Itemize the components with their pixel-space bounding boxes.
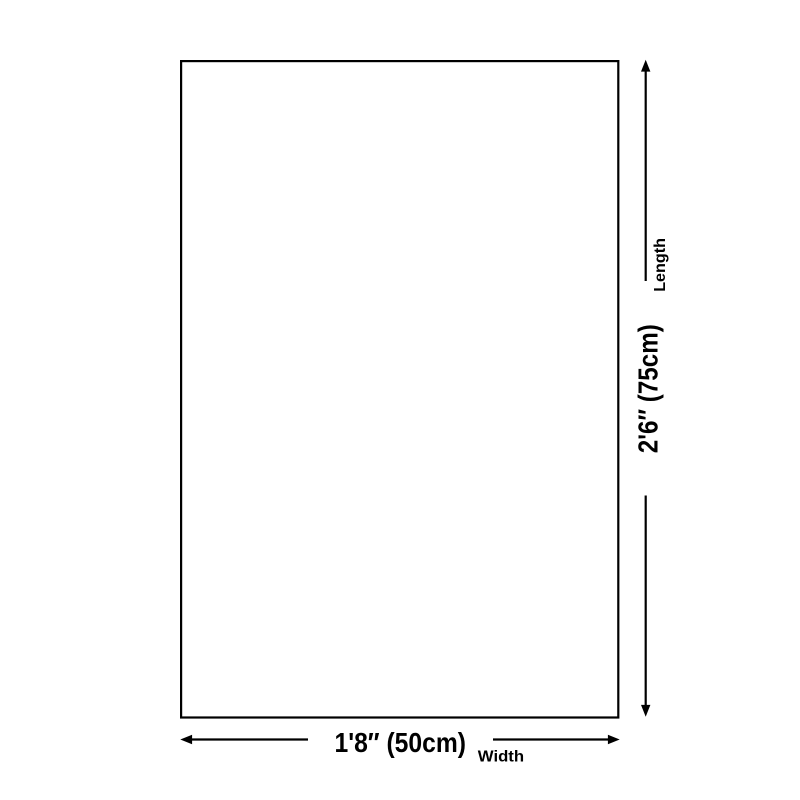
svg-text:1'8″ (50cm): 1'8″ (50cm) — [335, 727, 467, 758]
svg-text:Width: Width — [478, 748, 524, 765]
svg-text:Length: Length — [652, 238, 669, 292]
svg-text:2'6″ (75cm): 2'6″ (75cm) — [633, 324, 664, 453]
